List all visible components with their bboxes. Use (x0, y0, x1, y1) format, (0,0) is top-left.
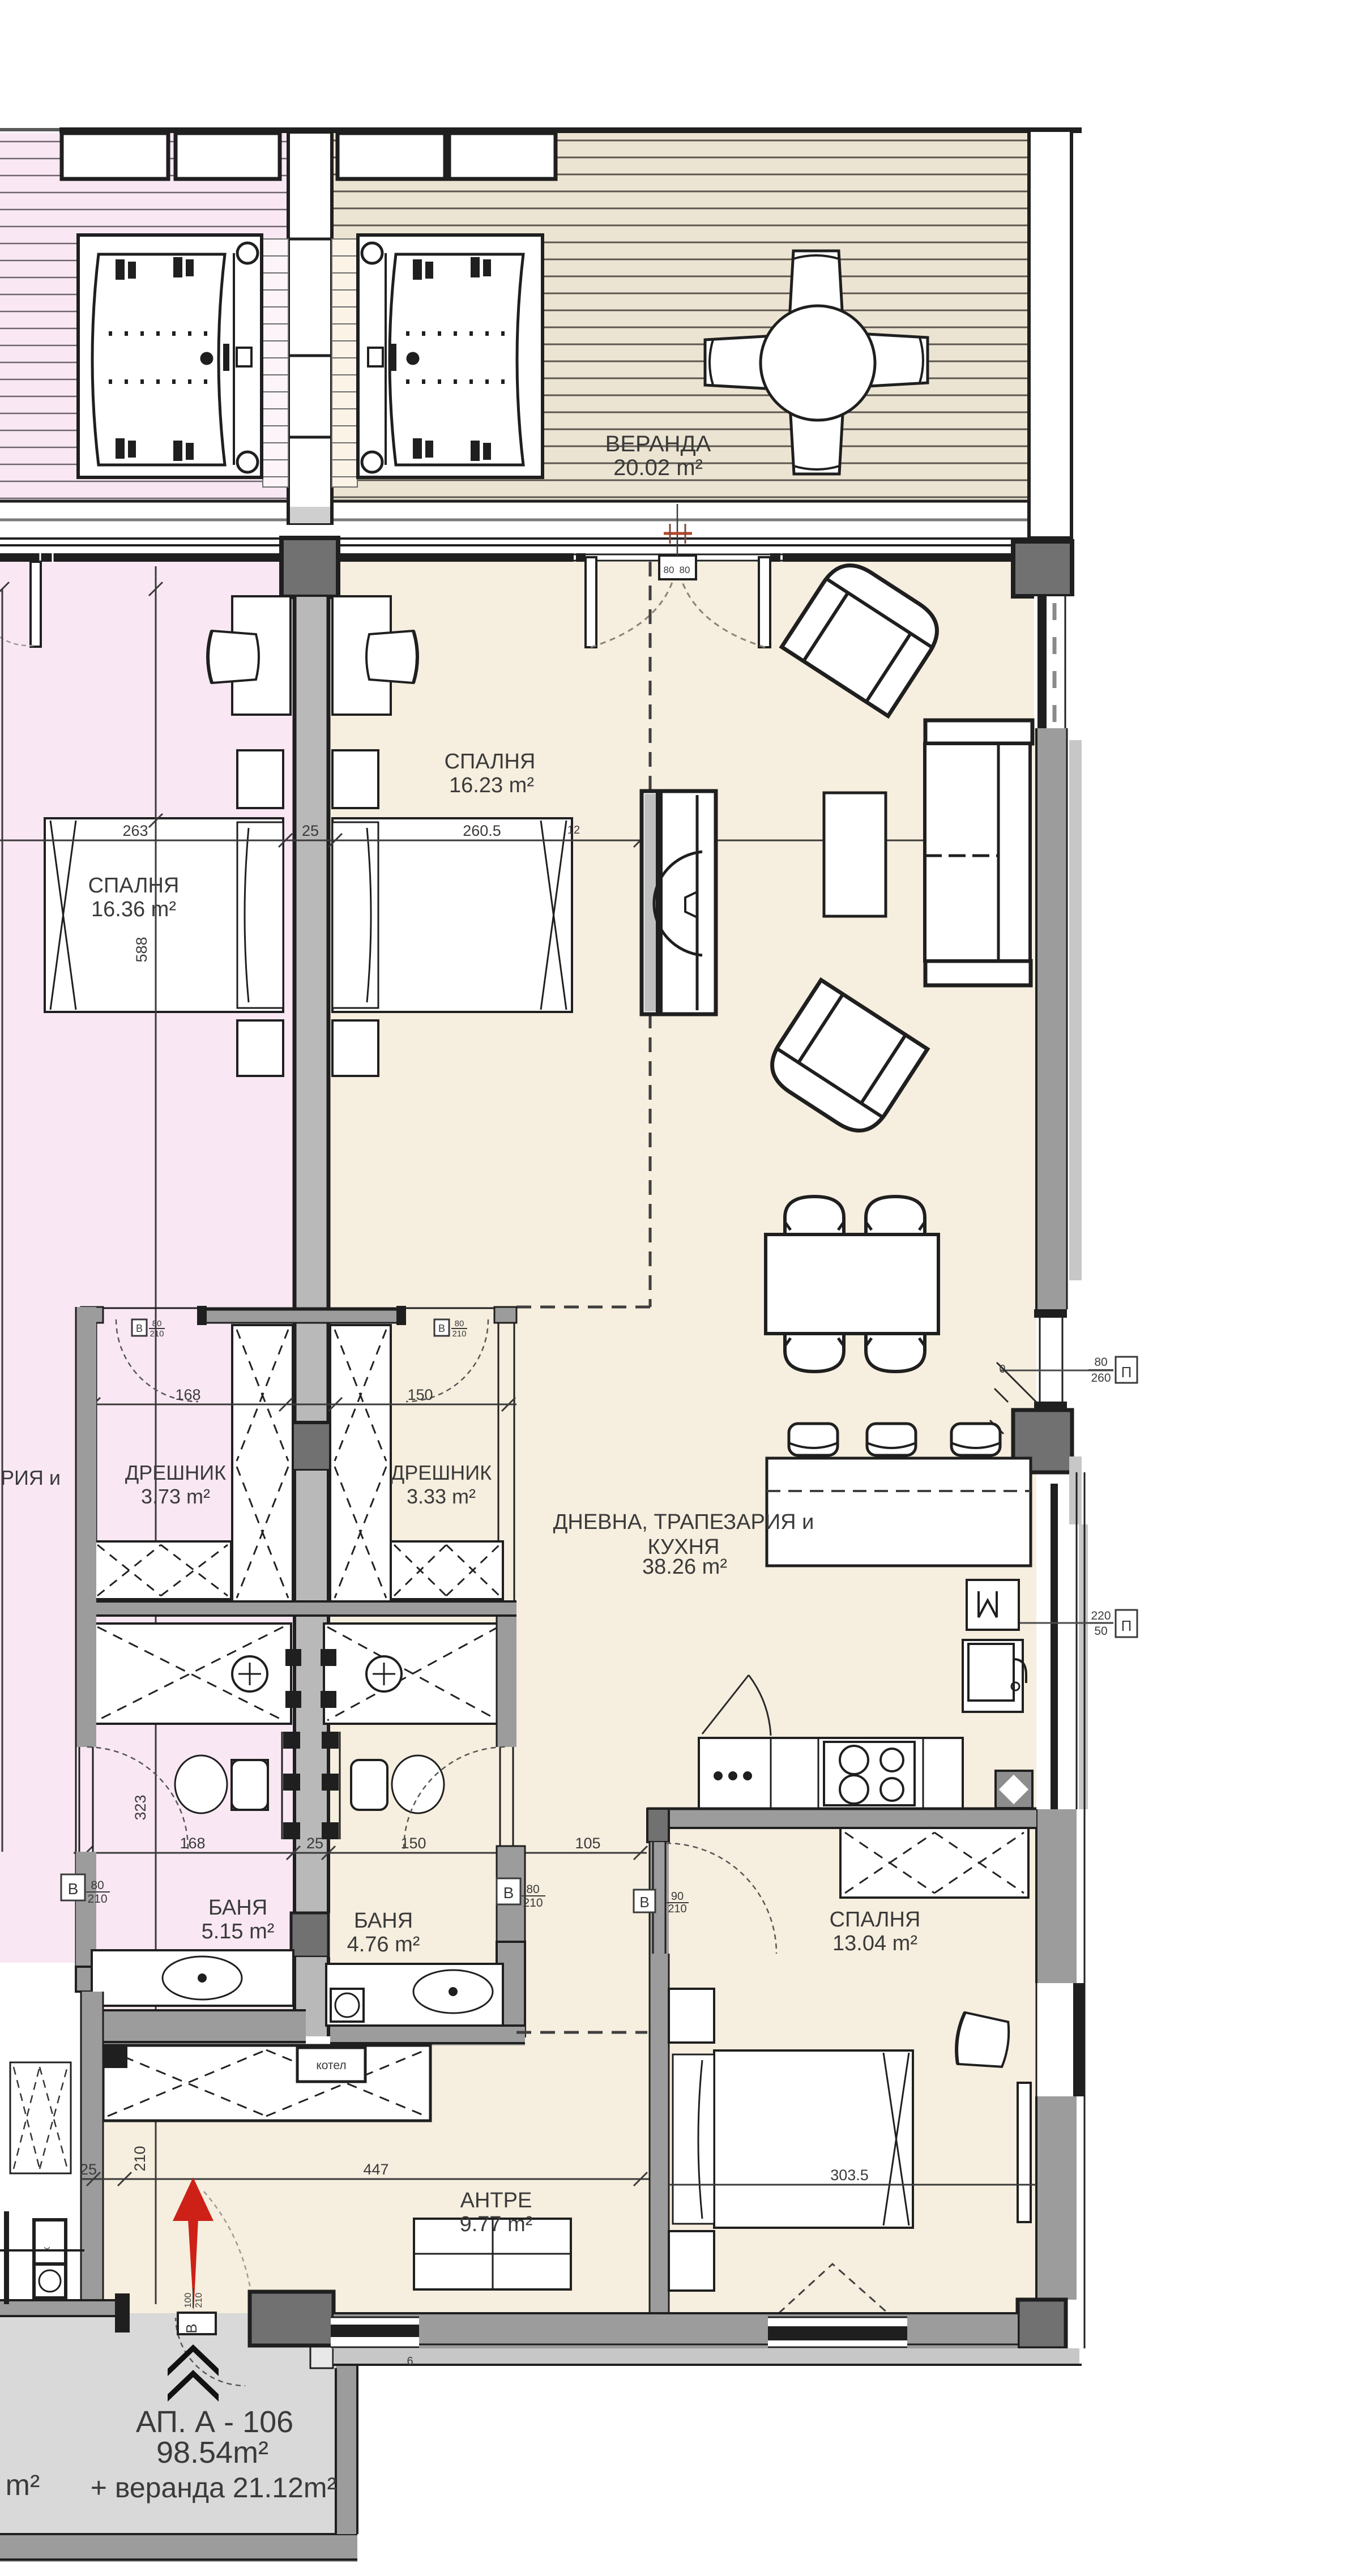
svg-text:12: 12 (567, 824, 580, 836)
svg-text:БАНЯ: БАНЯ (208, 1896, 267, 1920)
svg-text:9.77 m²: 9.77 m² (460, 2212, 533, 2236)
svg-text:3.33 m²: 3.33 m² (407, 1485, 476, 1508)
svg-text:ДНЕВНА, ТРАПЕЗАРИЯ и: ДНЕВНА, ТРАПЕЗАРИЯ и (553, 1510, 814, 1534)
svg-text:0: 0 (999, 1363, 1005, 1375)
svg-text:СПАЛНЯ: СПАЛНЯ (88, 874, 180, 898)
svg-text:210: 210 (452, 1329, 466, 1339)
svg-text:80: 80 (152, 1319, 162, 1328)
svg-text:ДРЕШНИК: ДРЕШНИК (125, 1461, 226, 1484)
svg-text:котел: котел (316, 2059, 346, 2072)
svg-text:100: 100 (183, 2293, 193, 2308)
svg-text:210: 210 (668, 1903, 686, 1915)
svg-text:16.23 m²: 16.23 m² (449, 774, 534, 797)
svg-text:25: 25 (80, 2161, 97, 2178)
svg-text:210: 210 (87, 1893, 107, 1906)
svg-text:В: В (183, 2323, 200, 2333)
svg-text:РИЯ и: РИЯ и (1, 1466, 61, 1489)
svg-text:+ веранда 21.12m²: + веранда 21.12m² (91, 2472, 336, 2504)
svg-text:80: 80 (1094, 1356, 1107, 1369)
svg-text:303.5: 303.5 (830, 2167, 869, 2184)
svg-text:БАНЯ: БАНЯ (354, 1909, 413, 1933)
svg-text:210: 210 (194, 2293, 204, 2308)
svg-text:150: 150 (407, 1386, 433, 1403)
svg-text:СПАЛНЯ: СПАЛНЯ (830, 1908, 921, 1932)
svg-text:210: 210 (131, 2146, 148, 2171)
svg-text:АП. А - 106: АП. А - 106 (136, 2405, 293, 2439)
svg-text:50: 50 (1094, 1625, 1107, 1638)
svg-text:П: П (1121, 1617, 1132, 1634)
svg-text:260.5: 260.5 (463, 822, 501, 839)
svg-text:80: 80 (526, 1883, 539, 1896)
svg-text:В: В (639, 1894, 649, 1911)
svg-text:m²: m² (6, 2469, 40, 2502)
svg-text:В: В (438, 1323, 445, 1334)
svg-text:СПАЛНЯ: СПАЛНЯ (445, 750, 536, 774)
svg-text:3.73 m²: 3.73 m² (141, 1485, 210, 1508)
svg-text:168: 168 (180, 1835, 205, 1852)
svg-text:4.76 m²: 4.76 m² (347, 1933, 420, 1956)
svg-text:20.02 m²: 20.02 m² (613, 455, 703, 480)
svg-text:263: 263 (122, 822, 148, 839)
svg-text:П: П (1121, 1364, 1132, 1381)
svg-text:80: 80 (91, 1879, 104, 1892)
svg-text:220: 220 (1091, 1609, 1111, 1622)
svg-text:168: 168 (175, 1386, 200, 1403)
svg-text:25: 25 (302, 822, 319, 839)
svg-text:6: 6 (407, 2355, 413, 2368)
svg-text:5.15 m²: 5.15 m² (202, 1920, 275, 1943)
svg-text:588: 588 (133, 937, 150, 962)
svg-text:323: 323 (132, 1795, 149, 1820)
svg-text:210: 210 (523, 1896, 543, 1909)
svg-text:В: В (68, 1880, 79, 1898)
svg-text:В: В (136, 1323, 143, 1334)
svg-text:260: 260 (1091, 1372, 1111, 1385)
svg-text:98.54m²: 98.54m² (156, 2436, 268, 2470)
svg-text:80: 80 (664, 565, 674, 575)
svg-text:25: 25 (306, 1835, 323, 1852)
svg-text:АНТРЕ: АНТРЕ (460, 2189, 532, 2212)
svg-text:ДРЕШНИК: ДРЕШНИК (391, 1461, 492, 1484)
svg-text:105: 105 (575, 1835, 600, 1852)
svg-text:В: В (503, 1884, 514, 1902)
svg-text:13.04 m²: 13.04 m² (832, 1932, 917, 1955)
svg-text:80: 80 (680, 565, 690, 575)
svg-text:80: 80 (455, 1319, 464, 1328)
svg-text:447: 447 (363, 2161, 388, 2178)
svg-text:210: 210 (150, 1329, 164, 1339)
svg-text:90: 90 (671, 1890, 684, 1903)
svg-text:ВЕРАНДА: ВЕРАНДА (605, 432, 711, 456)
svg-text:16.36 m²: 16.36 m² (91, 898, 176, 921)
svg-text:38.26 m²: 38.26 m² (642, 1555, 727, 1579)
